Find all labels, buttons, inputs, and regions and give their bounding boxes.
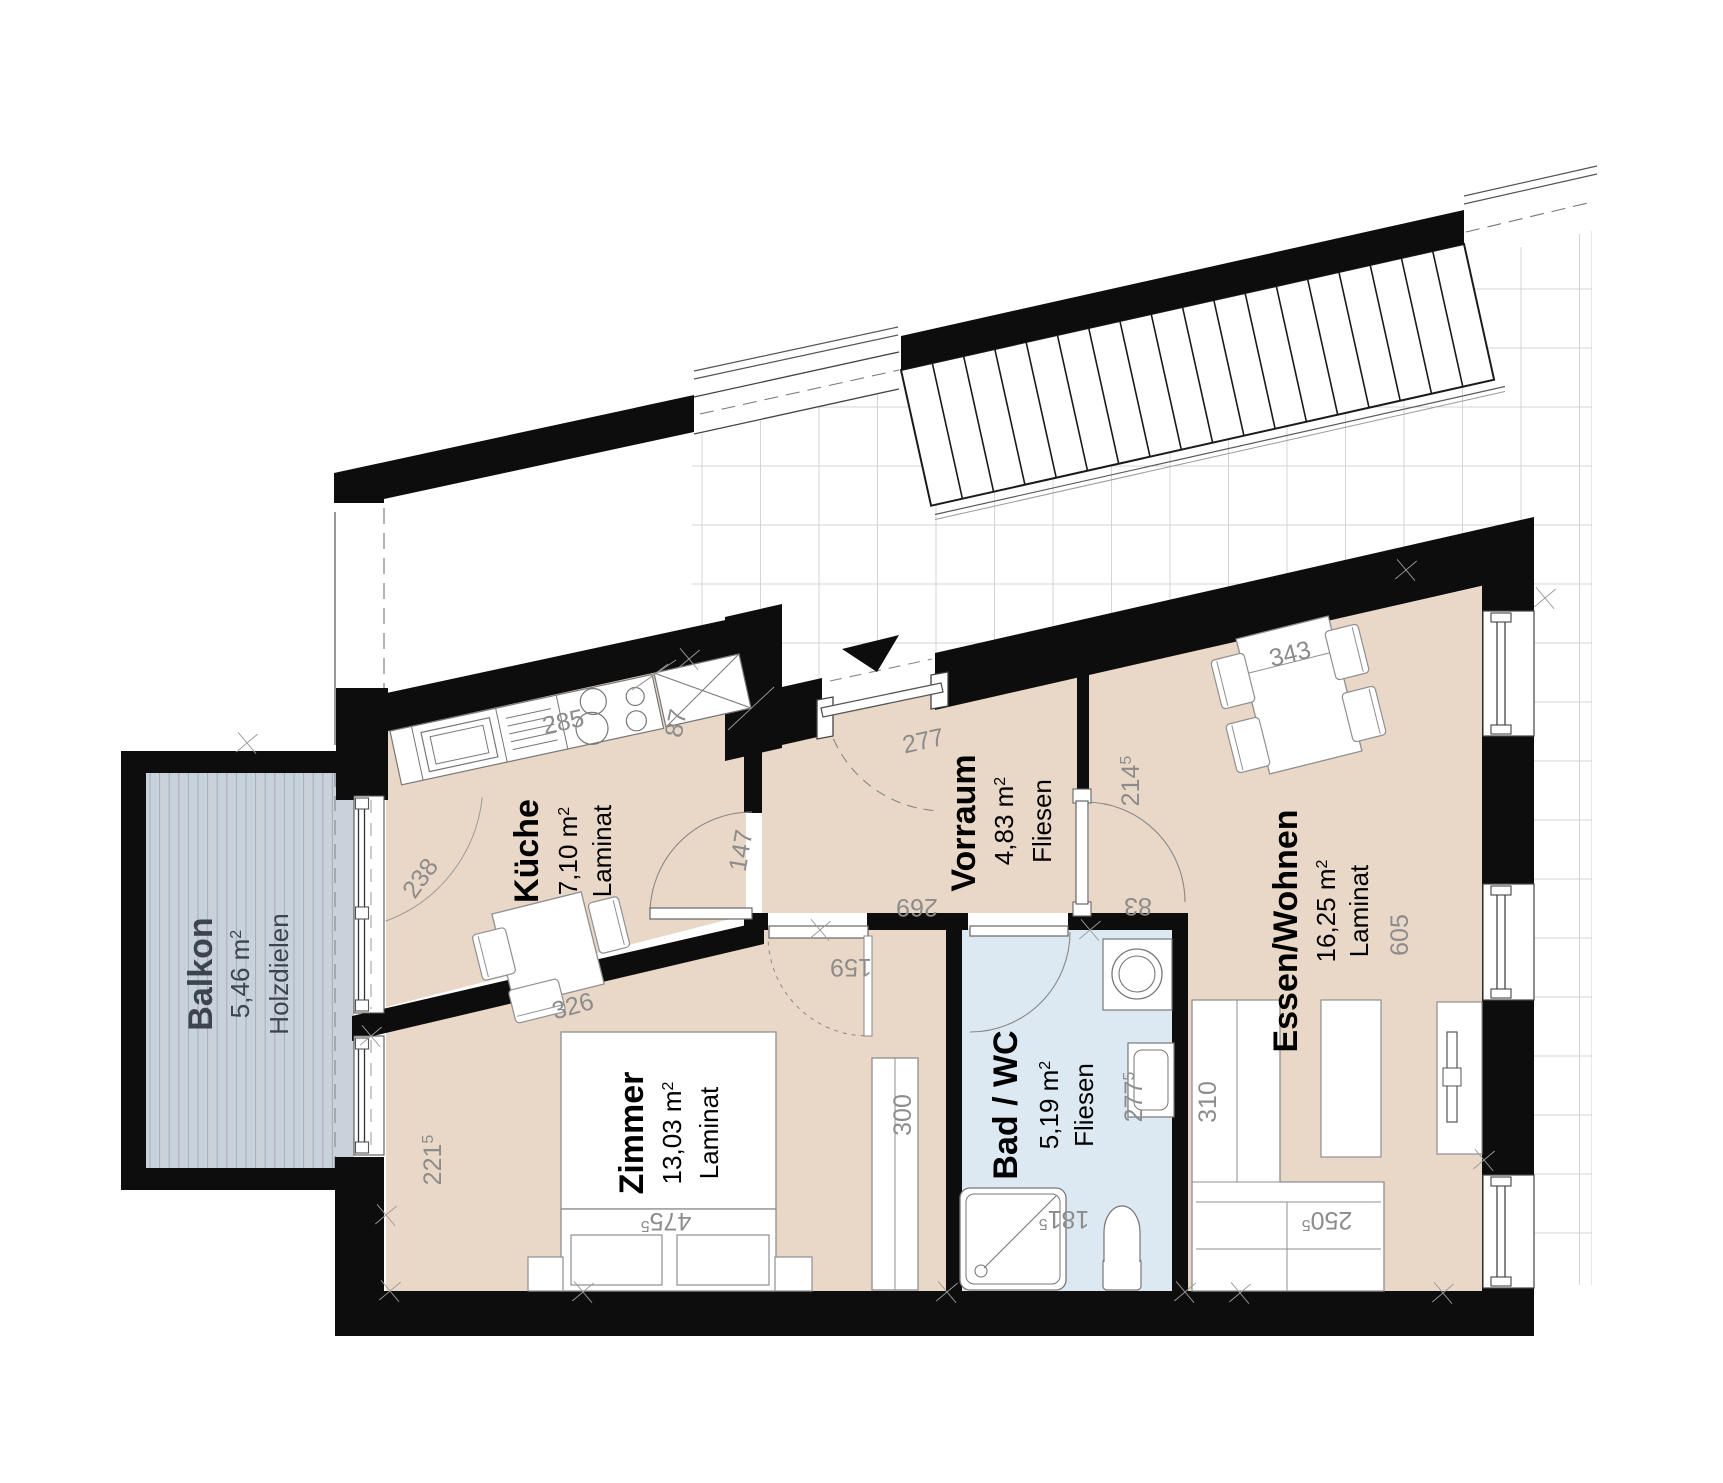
svg-text:Küche: Küche: [508, 799, 546, 903]
svg-text:Zimmer: Zimmer: [613, 1072, 651, 1195]
svg-text:5,46 m2: 5,46 m2: [225, 930, 255, 1019]
svg-text:16,25 m2: 16,25 m2: [1311, 859, 1341, 962]
svg-text:Laminat: Laminat: [694, 1086, 724, 1179]
svg-text:Laminat: Laminat: [1344, 864, 1374, 957]
svg-text:Bad / WC: Bad / WC: [987, 1030, 1025, 1179]
svg-text:13,03 m2: 13,03 m2: [657, 1081, 687, 1184]
svg-text:Fliesen: Fliesen: [1027, 779, 1057, 863]
svg-text:87: 87: [660, 707, 693, 740]
svg-text:Fliesen: Fliesen: [1069, 1063, 1099, 1147]
svg-text:269: 269: [896, 893, 938, 921]
svg-text:159: 159: [830, 953, 872, 981]
svg-text:Holzdielen: Holzdielen: [264, 913, 294, 1034]
svg-text:83: 83: [1124, 892, 1152, 920]
svg-text:7,10 m2: 7,10 m2: [553, 807, 583, 896]
svg-text:605: 605: [1386, 914, 1414, 956]
svg-text:Essen/Wohnen: Essen/Wohnen: [1267, 809, 1305, 1052]
svg-text:Laminat: Laminat: [587, 804, 617, 897]
svg-text:300: 300: [889, 1094, 917, 1136]
svg-text:4,83 m2: 4,83 m2: [989, 777, 1019, 866]
svg-text:Balkon: Balkon: [182, 917, 220, 1030]
svg-text:310: 310: [1194, 1081, 1222, 1123]
svg-text:Vorraum: Vorraum: [945, 754, 983, 891]
svg-text:5,19 m2: 5,19 m2: [1034, 1061, 1064, 1150]
